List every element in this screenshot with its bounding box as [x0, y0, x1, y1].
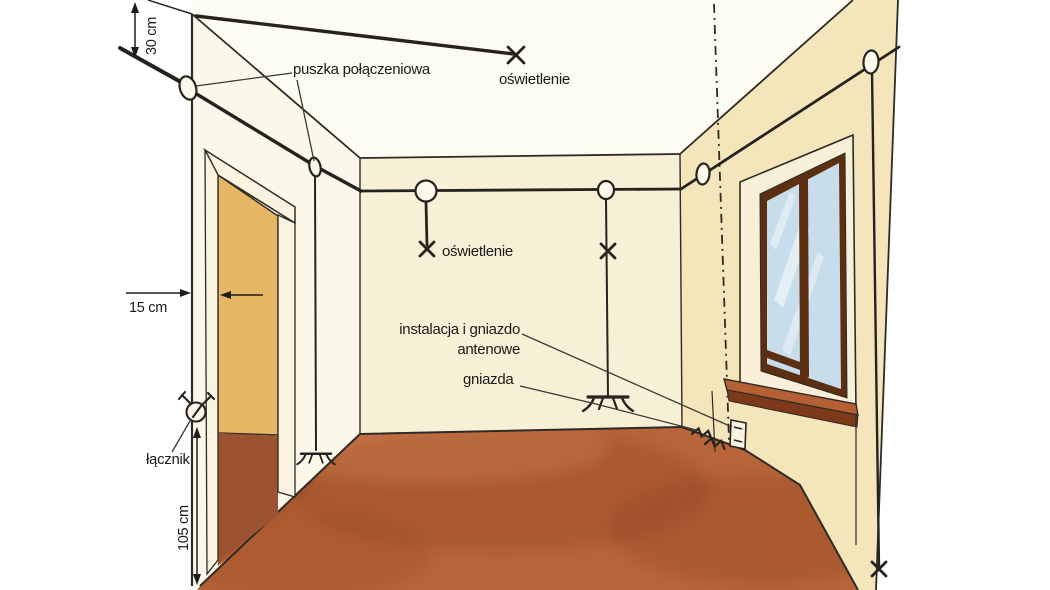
junction-box-icon: [598, 181, 614, 199]
label-antenna-socket-line1: instalacja i gniazdo: [395, 320, 520, 340]
dimension-label-15cm: 15 cm: [129, 300, 167, 316]
label-antenna-socket-line2: antenowe: [395, 340, 520, 360]
label-wall-light: oświetlenie: [442, 243, 513, 260]
doorway-interior: [218, 175, 278, 435]
wire-drop-socket-left: [315, 176, 316, 450]
dimension-label-105cm: 105 cm: [176, 505, 192, 551]
label-antenna-socket: instalacja i gniazdo antenowe: [395, 320, 520, 359]
junction-box-icon: [863, 50, 880, 74]
dimension-label-30cm: 30 cm: [144, 17, 160, 55]
label-sockets: gniazda: [463, 371, 513, 388]
dimension-30cm: [131, 2, 139, 58]
wall-back: [360, 154, 682, 434]
wire-drop-light: [426, 202, 427, 245]
wire-run-back-wall: [361, 189, 681, 191]
label-ceiling-light: oświetlenie: [499, 71, 570, 88]
door-frame-left-jamb: [205, 150, 218, 574]
leader-line: [172, 421, 190, 452]
antenna-socket-icon: [730, 420, 746, 449]
room-illustration: [0, 0, 1050, 590]
electrical-installation-diagram: puszka połączeniowa oświetlenie oświetle…: [0, 0, 1050, 590]
door-frame-right-jamb: [278, 215, 295, 497]
label-junction-box: puszka połączeniowa: [293, 61, 430, 78]
label-switch: łącznik: [146, 451, 190, 468]
junction-box-icon: [416, 181, 437, 202]
window-mullion: [799, 178, 809, 380]
